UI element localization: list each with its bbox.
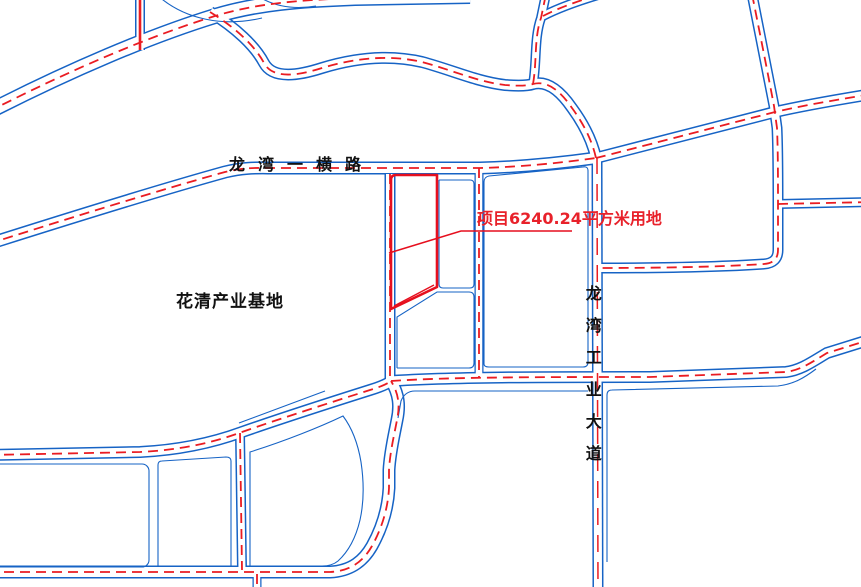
road-name-vertical-label: 龙湾工业大道 — [583, 285, 600, 477]
road-centerlines — [0, 0, 861, 587]
planning-map: 龙湾一横路 项目6240.24平方米用地 花清产业基地 龙湾工业大道 — [0, 0, 861, 587]
map-canvas — [0, 0, 861, 587]
industrial-base-label: 花清产业基地 — [176, 294, 284, 312]
road-name-top-label: 龙湾一横路 — [229, 157, 374, 174]
project-area-label: 项目6240.24平方米用地 — [477, 211, 662, 228]
project-parcel-outline — [391, 175, 437, 309]
road-network-edges — [0, 0, 861, 587]
project-parcel-south-edge — [394, 285, 434, 306]
road-network-fill — [0, 0, 861, 587]
parcel-boundaries — [0, 0, 816, 567]
